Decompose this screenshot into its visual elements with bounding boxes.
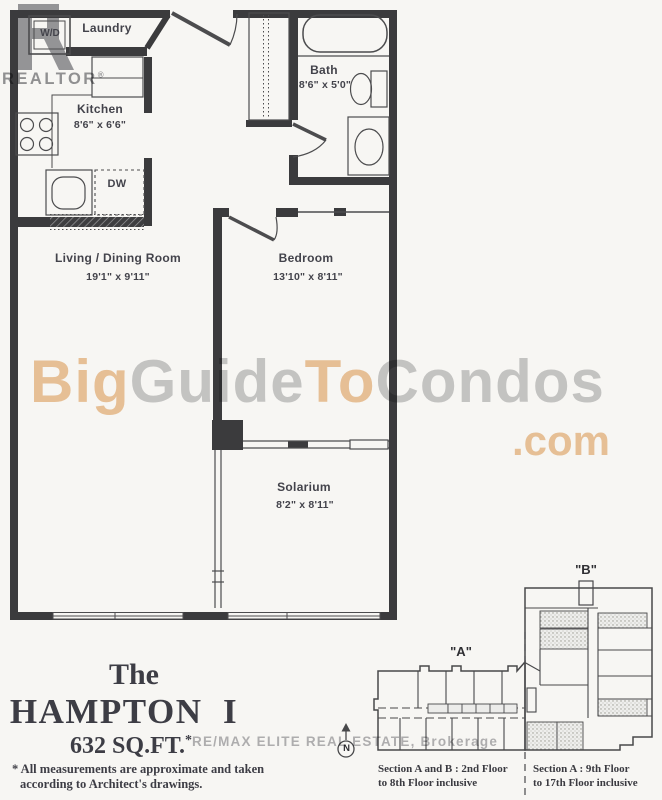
laundry-angled-walls bbox=[147, 15, 168, 48]
kitchen-sink-icon bbox=[46, 170, 92, 215]
kitchen-counter-icon bbox=[52, 57, 143, 168]
bath-door-icon bbox=[293, 124, 326, 157]
north-compass-icon bbox=[338, 723, 354, 757]
toilet-icon bbox=[351, 71, 388, 107]
floor-plan-page: Laundry W/D Kitchen 8'6" x 6'6" DW Bath … bbox=[0, 0, 662, 800]
walls bbox=[10, 10, 397, 620]
solarium-window-icon bbox=[228, 613, 380, 620]
kitchen-halfwall-hatched bbox=[50, 217, 144, 227]
living-window-icon bbox=[53, 613, 183, 620]
floor-plan-drawing bbox=[0, 0, 662, 800]
fixtures bbox=[16, 13, 389, 619]
solarium-top-window-icon bbox=[243, 440, 389, 449]
solarium-side-window-icon bbox=[212, 450, 224, 608]
bathtub-icon bbox=[298, 15, 389, 56]
dishwasher-icon bbox=[95, 170, 144, 215]
entry-closet-icon bbox=[249, 13, 289, 120]
entry-door-icon bbox=[172, 13, 237, 45]
bedroom-door-icon bbox=[229, 217, 277, 240]
key-plan-section-a-units bbox=[378, 671, 525, 750]
bath-sink-icon bbox=[348, 117, 389, 175]
key-plan-highlighted-units bbox=[527, 611, 647, 750]
